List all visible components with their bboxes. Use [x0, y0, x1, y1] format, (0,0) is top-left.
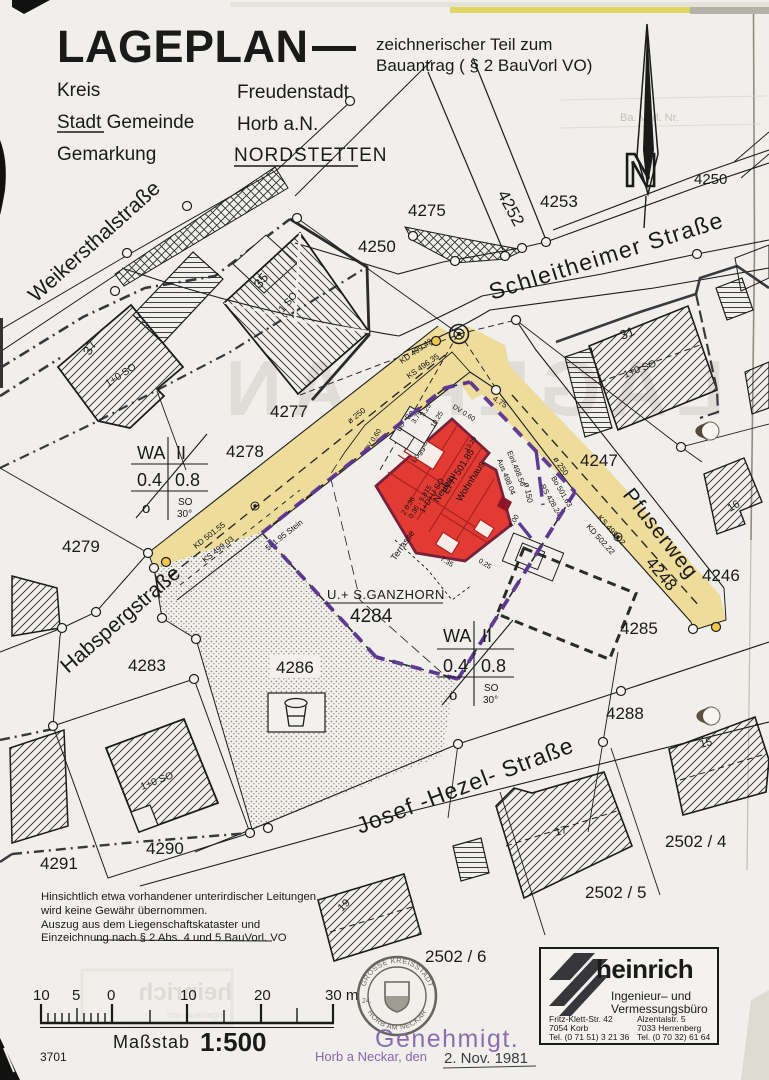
svg-text:LAGEPLAN: LAGEPLAN — [57, 21, 309, 72]
svg-text:II: II — [482, 626, 492, 646]
svg-text:heinrich: heinrich — [596, 954, 693, 984]
svg-text:4250: 4250 — [358, 237, 396, 256]
svg-text:4288: 4288 — [606, 704, 644, 723]
svg-text:30°: 30° — [483, 695, 498, 706]
svg-text:2502 / 5: 2502 / 5 — [585, 883, 646, 902]
svg-text:Gemarkung: Gemarkung — [57, 144, 156, 165]
svg-text:2502 / 4: 2502 / 4 — [665, 832, 726, 851]
svg-text:NORDSTETTEN: NORDSTETTEN — [234, 145, 388, 166]
svg-text:4246: 4246 — [702, 566, 740, 585]
svg-text:10: 10 — [33, 987, 50, 1004]
svg-text:4247: 4247 — [580, 451, 618, 470]
svg-text:4279: 4279 — [62, 537, 100, 556]
svg-text:0: 0 — [107, 987, 115, 1004]
svg-text:Horb a Neckar, den: Horb a Neckar, den — [315, 1049, 427, 1064]
svg-text:3701: 3701 — [40, 1050, 67, 1064]
svg-text:30°: 30° — [177, 509, 192, 520]
svg-text:Ingenieur- und: Ingenieur- und — [167, 1010, 225, 1020]
svg-text:Hinsichtlich etwa vorhandener: Hinsichtlich etwa vorhandener unterirdis… — [41, 891, 316, 903]
svg-text:5: 5 — [72, 987, 80, 1004]
svg-text:30 m: 30 m — [325, 987, 358, 1004]
svg-text:4283: 4283 — [128, 656, 166, 675]
svg-text:24.: 24. — [362, 998, 372, 1005]
svg-text:Horb a.N.: Horb a.N. — [237, 114, 318, 135]
svg-text:4250: 4250 — [694, 171, 727, 188]
svg-text:0.4: 0.4 — [137, 470, 162, 490]
svg-text:Ingenieur– und: Ingenieur– und — [611, 989, 691, 1003]
svg-text:4285: 4285 — [620, 619, 658, 638]
svg-text:10: 10 — [180, 987, 197, 1004]
svg-text:Einzeichnung nach § 2 Abs. 4 u: Einzeichnung nach § 2 Abs. 4 und 5 BauVo… — [41, 932, 287, 944]
svg-text:4278: 4278 — [226, 442, 264, 461]
svg-text:Bauantrag ( § 2 BauVorl VO): Bauantrag ( § 2 BauVorl VO) — [376, 56, 592, 75]
svg-text:2. Nov. 1981: 2. Nov. 1981 — [444, 1050, 528, 1067]
svg-text:4291: 4291 — [40, 854, 78, 873]
svg-text:WA: WA — [137, 443, 165, 463]
svg-text:SO: SO — [178, 497, 193, 508]
svg-text:U.+ S.GANZHORN: U.+ S.GANZHORN — [327, 587, 445, 602]
svg-text:4290: 4290 — [146, 839, 184, 858]
svg-text:4277: 4277 — [270, 402, 308, 421]
svg-text:0.4: 0.4 — [443, 656, 468, 676]
svg-text:Freudenstadt: Freudenstadt — [237, 82, 350, 103]
svg-text:0.8: 0.8 — [175, 470, 200, 490]
svg-text:Maßstab: Maßstab — [113, 1032, 190, 1052]
svg-text:4253: 4253 — [540, 192, 578, 211]
svg-text:zeichnerischer Teil zum: zeichnerischer Teil zum — [376, 35, 552, 54]
svg-text:20: 20 — [254, 987, 271, 1004]
svg-text:2502 / 6: 2502 / 6 — [425, 947, 486, 966]
svg-text:N: N — [624, 144, 657, 196]
svg-text:Auszug aus dem Liegenschaftska: Auszug aus dem Liegenschaftskataster und — [41, 919, 260, 931]
svg-text:wird keine Gewähr übernommen.: wird keine Gewähr übernommen. — [40, 905, 207, 917]
svg-text:Tel. (0 71 51) 3 21 36: Tel. (0 71 51) 3 21 36 — [549, 1032, 630, 1042]
svg-text:Kreis: Kreis — [57, 80, 100, 101]
svg-text:*: * — [424, 967, 429, 979]
svg-text:WA: WA — [443, 626, 471, 646]
svg-text:Tel. (0 70 32) 61 64: Tel. (0 70 32) 61 64 — [637, 1032, 711, 1042]
svg-text:Stadt Gemeinde: Stadt Gemeinde — [57, 112, 194, 133]
svg-text:4284: 4284 — [350, 606, 393, 627]
svg-text:1:500: 1:500 — [200, 1027, 267, 1057]
svg-text:4275: 4275 — [408, 201, 446, 220]
svg-text:4286: 4286 — [276, 658, 314, 677]
svg-text:SO: SO — [484, 683, 499, 694]
svg-text:0.8: 0.8 — [481, 656, 506, 676]
